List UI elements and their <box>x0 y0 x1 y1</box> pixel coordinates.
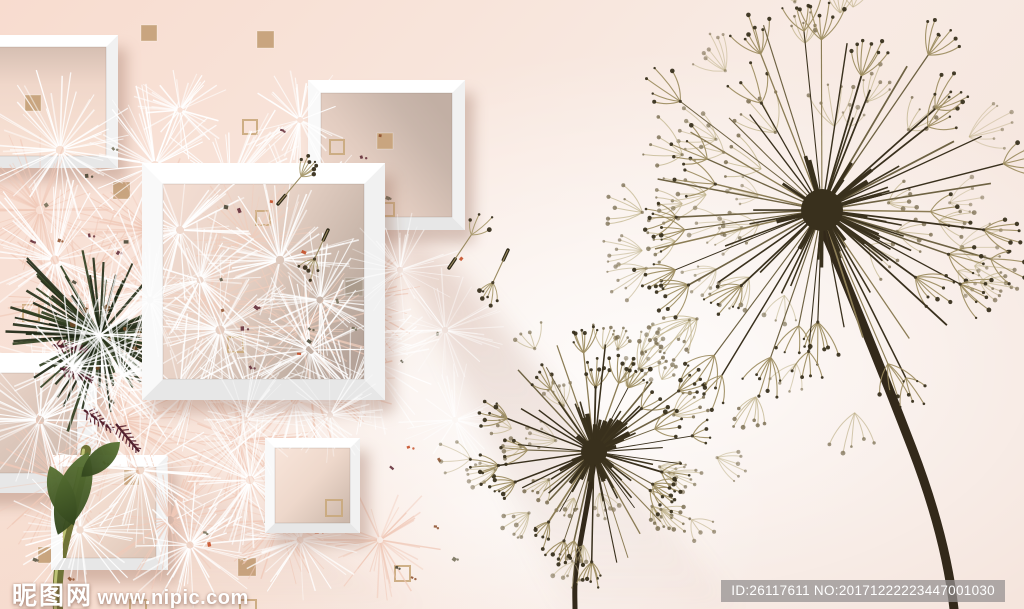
artwork-stage: 昵图网 www.nipic.com 昵图网 www.nipic.com ID:2… <box>0 0 1024 609</box>
id-badge: ID:26117611 NO:20171222223447001030 <box>721 580 1005 602</box>
accent-square-filled <box>141 25 157 41</box>
dandelion-core <box>581 439 607 465</box>
accent-square-filled <box>257 31 274 48</box>
frame-opening <box>275 448 350 523</box>
artwork-canvas <box>0 0 1024 609</box>
frame-bottom-mid <box>265 438 369 546</box>
dandelion-core <box>801 189 843 231</box>
watermark-clipped-row: 昵图网 www.nipic.com <box>12 602 249 609</box>
